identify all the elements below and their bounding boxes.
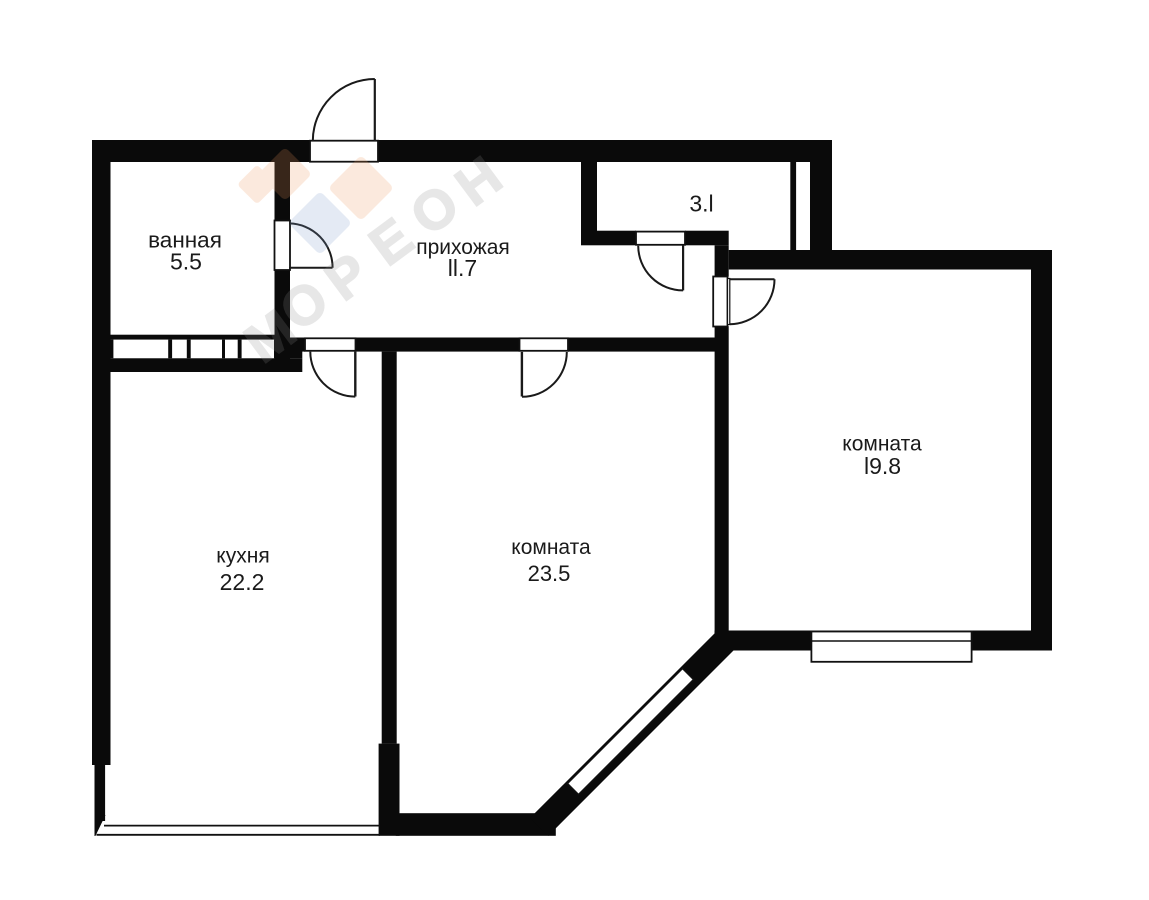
svg-text:22.2: 22.2	[220, 569, 265, 595]
svg-text:комната: комната	[511, 536, 591, 559]
svg-text:кухня: кухня	[216, 545, 269, 568]
svg-text:5.5: 5.5	[170, 249, 202, 275]
svg-text:ll.7: ll.7	[448, 255, 477, 281]
svg-text:l9.8: l9.8	[864, 453, 901, 479]
svg-text:23.5: 23.5	[528, 561, 571, 586]
svg-text:3.l: 3.l	[689, 191, 713, 217]
